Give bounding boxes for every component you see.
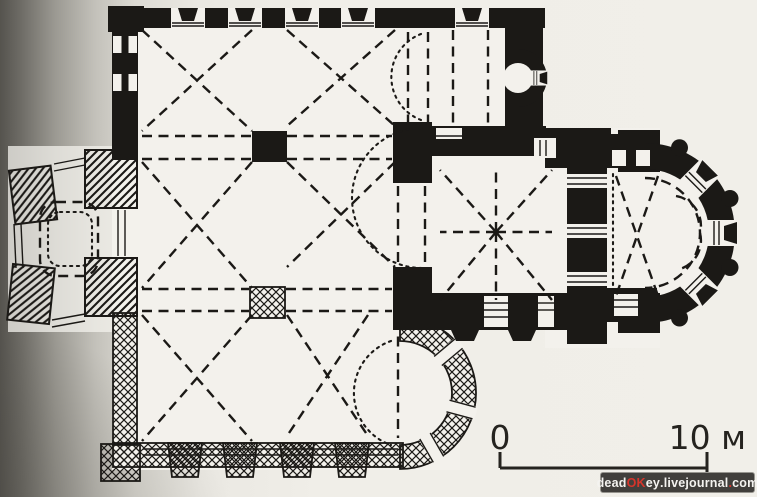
watermark-text: livejournal <box>664 476 729 490</box>
annex-pier <box>85 258 137 316</box>
scale-bar: 0 10 м <box>490 418 747 472</box>
scale-label-end: 10 м <box>669 418 746 457</box>
watermark-text: dead <box>597 476 627 490</box>
north-window <box>171 8 205 28</box>
bema-south-window <box>614 294 638 316</box>
northwest-pier <box>252 131 287 162</box>
south-pilaster <box>280 443 314 477</box>
church-floor-plan: 0 10 м <box>0 0 757 497</box>
apse-buttress <box>671 310 688 327</box>
apse-buttress <box>722 190 739 207</box>
south-pilaster <box>335 443 369 477</box>
west-window <box>113 36 137 53</box>
watermark-text-accent: OK <box>627 476 646 490</box>
apse-window <box>707 220 738 246</box>
south-window <box>484 296 508 327</box>
south-pilaster <box>168 443 202 477</box>
annex-pier <box>85 150 137 208</box>
south-pier-foot <box>508 330 536 341</box>
west-wall-south <box>113 313 137 445</box>
south-pilaster <box>223 443 257 477</box>
northeast-crossing-pier <box>393 122 432 183</box>
watermark-text: com <box>732 476 757 490</box>
apse-buttress <box>671 139 688 156</box>
chapel-north-window <box>455 8 489 28</box>
watermark: deadOKey.livejournal.com <box>600 472 755 493</box>
north-window <box>228 8 262 28</box>
templon-pier <box>567 128 607 174</box>
wall-notch <box>612 150 626 166</box>
watermark-text: ey <box>646 476 660 490</box>
chapel-apse-interior <box>503 63 533 93</box>
southwest-pier <box>250 287 285 318</box>
south-window <box>538 296 554 327</box>
apse-buttress <box>722 259 739 276</box>
scale-label-start: 0 <box>490 418 511 457</box>
wall-notch <box>436 128 462 139</box>
templon-pier <box>567 286 607 344</box>
wall-notch <box>636 150 650 166</box>
scanned-page: 0 10 м deadOKey.livejournal.com <box>0 0 757 497</box>
west-window <box>113 74 137 91</box>
templon-pier <box>567 238 607 272</box>
templon-pier <box>567 188 607 224</box>
north-window <box>285 8 319 28</box>
north-window <box>341 8 375 28</box>
annex-pier <box>9 166 57 225</box>
chapel-apse-window <box>530 70 548 85</box>
southwest-corner-block <box>101 444 140 481</box>
doorway <box>534 138 556 158</box>
